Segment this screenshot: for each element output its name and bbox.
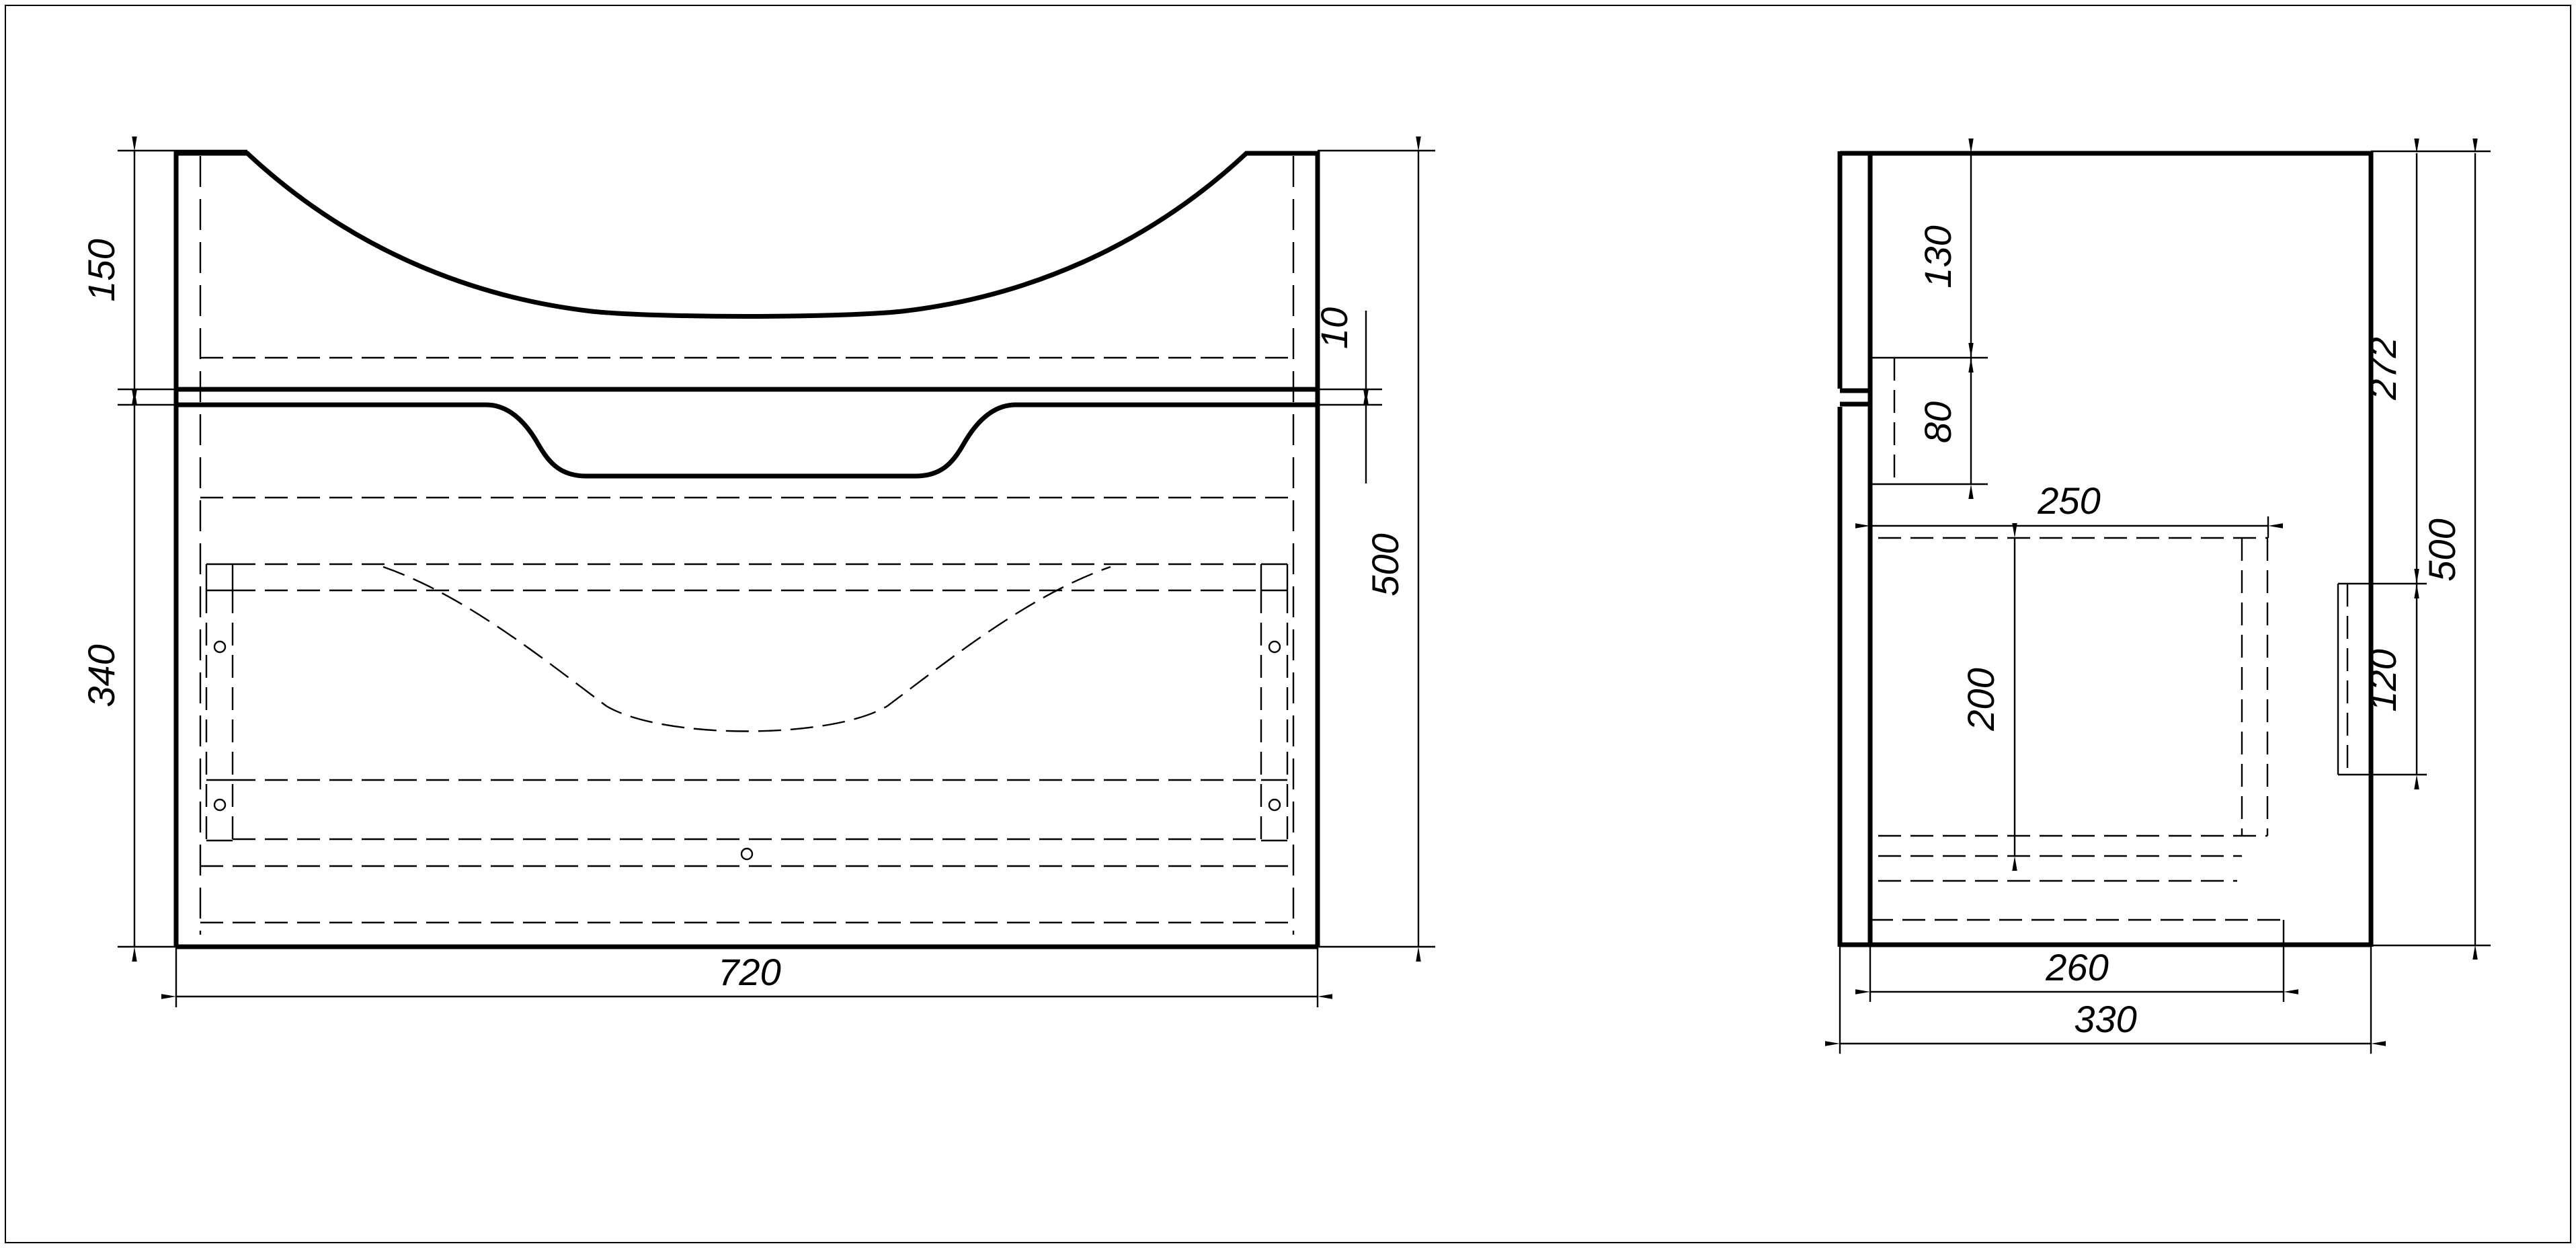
- front-hidden-lines: [200, 156, 1293, 935]
- dim-side-front-notch: 80: [1917, 401, 1959, 443]
- dim-front-lower-height: 340: [80, 644, 122, 707]
- front-dimension-lines: [134, 151, 1418, 997]
- dim-front-gap: 10: [1313, 307, 1355, 349]
- dim-side-front-top: 130: [1917, 225, 1959, 288]
- dim-side-bottom-width: 260: [2045, 946, 2108, 988]
- front-outline: [176, 151, 1318, 947]
- front-top-sink-curve: [176, 153, 1318, 317]
- dim-front-top-height: 150: [80, 239, 122, 301]
- front-center-hole: [741, 849, 752, 859]
- dim-front-total-height: 500: [1364, 533, 1406, 596]
- dim-side-total-depth: 330: [2074, 998, 2136, 1040]
- dim-side-back-top: 272: [2362, 337, 2404, 400]
- front-bowl-hidden-curve: [383, 567, 1111, 732]
- screw-hole: [214, 641, 225, 652]
- front-drawer-top-with-groove: [176, 405, 1318, 476]
- side-view: 130 80 250 200 272 120 500 260 330: [1840, 151, 2491, 1054]
- cad-drawing-canvas: 150 340 10 500 720: [0, 0, 2576, 1248]
- screw-hole: [214, 799, 225, 810]
- front-view: 150 340 10 500 720: [80, 151, 1435, 1007]
- front-bracket-right: [1261, 564, 1287, 841]
- dim-side-total-height: 500: [2421, 518, 2463, 581]
- drawing-sheet: 150 340 10 500 720: [0, 0, 2576, 1248]
- dim-side-drawer-height: 200: [1960, 668, 2002, 731]
- dim-side-bracket-height: 120: [2362, 649, 2404, 711]
- screw-hole: [1269, 799, 1280, 810]
- screw-hole: [1269, 641, 1280, 652]
- dim-front-total-width: 720: [718, 951, 780, 993]
- front-extension-lines: [118, 151, 1435, 1007]
- dim-side-drawer-depth: 250: [2037, 479, 2100, 522]
- front-bracket-left: [206, 564, 233, 841]
